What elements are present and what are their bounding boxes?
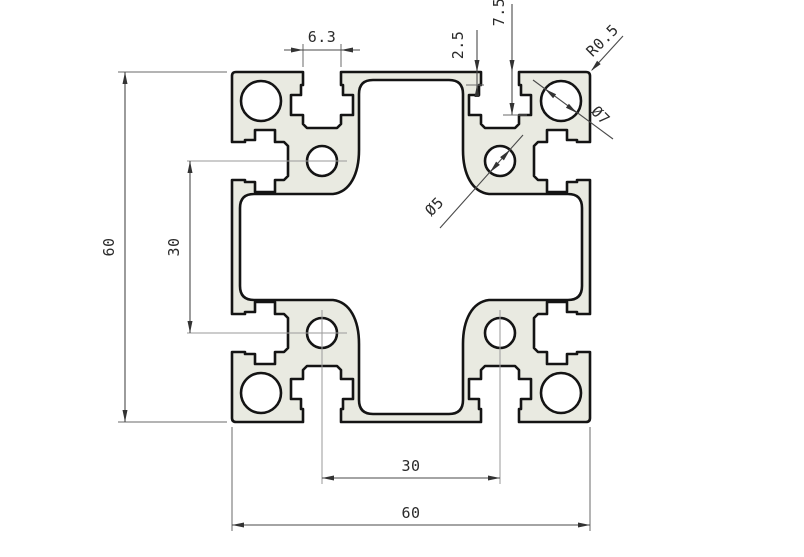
dim-hole-spacing-vertical: 30 [165,161,193,333]
cad-drawing-page: 6.3 2.5 7.5 R0.5 Ø7 Ø5 [0,0,804,557]
dim-text-corner-radius: R0.5 [583,21,623,61]
dim-text-lip-depth: 2.5 [449,31,467,60]
dim-text-slot-depth: 7.5 [490,0,508,26]
dim-text-overall-width: 60 [401,504,420,522]
dim-text-center-hole: Ø5 [421,193,447,219]
dim-hole-spacing-horizontal: 30 [322,457,500,481]
dim-overall-width: 60 [232,427,590,531]
drawing-canvas: 6.3 2.5 7.5 R0.5 Ø7 Ø5 [0,0,804,557]
dim-corner-radius: R0.5 [583,21,623,71]
corner-hole-bottom-right [541,373,581,413]
dim-text-hole-spacing-horizontal: 30 [401,457,420,475]
profile-body [232,72,590,422]
dim-text-overall-height: 60 [100,237,118,256]
dim-overall-height: 60 [100,72,227,422]
dim-text-hole-spacing-vertical: 30 [165,237,183,256]
dim-text-slot-opening: 6.3 [308,28,337,46]
corner-hole-bottom-left [241,373,281,413]
dim-slot-depth: 7.5 [490,0,527,115]
dim-slot-opening: 6.3 [284,28,360,67]
dim-text-corner-hole: Ø7 [587,102,613,128]
corner-hole-top-left [241,81,281,121]
